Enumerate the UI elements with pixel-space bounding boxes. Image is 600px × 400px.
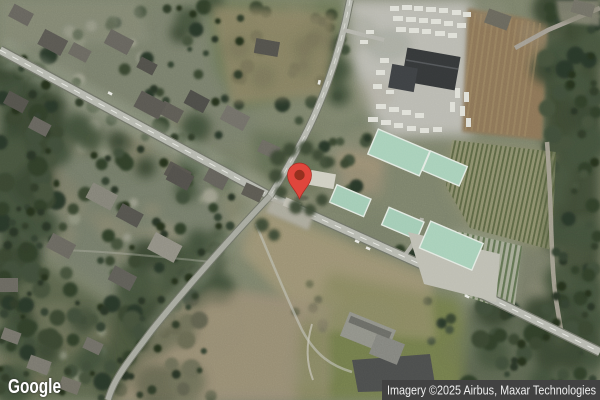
svg-text:Imagery ©2025 Airbus, Maxar Te: Imagery ©2025 Airbus, Maxar Technologies (387, 383, 596, 398)
svg-text:Google: Google (8, 376, 61, 398)
